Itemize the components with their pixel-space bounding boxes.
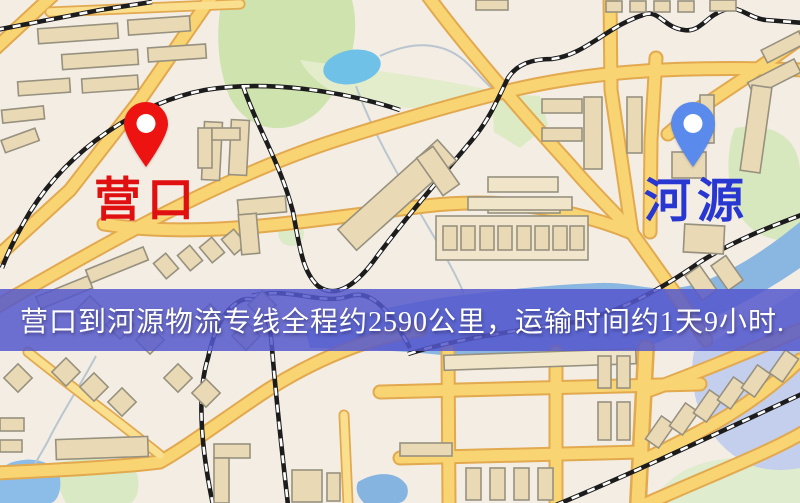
building: [56, 436, 149, 459]
building: [0, 440, 22, 452]
building: [214, 458, 229, 503]
building: [584, 97, 602, 169]
building: [617, 356, 630, 388]
origin-city-label: 营口: [94, 176, 200, 223]
building: [461, 226, 475, 250]
origin-marker: [121, 101, 171, 169]
building: [514, 468, 529, 500]
building: [553, 226, 567, 250]
building: [198, 128, 212, 168]
building: [237, 196, 286, 216]
building: [400, 443, 452, 456]
logistics-route-map: 营口 河源 营口到河源物流专线全程约2590公里，运输时间约1天9小时.: [0, 0, 800, 503]
building: [535, 226, 549, 250]
route-info-banner: 营口到河源物流专线全程约2590公里，运输时间约1天9小时.: [0, 289, 800, 351]
building: [683, 224, 724, 254]
building: [542, 99, 582, 113]
building: [148, 44, 207, 62]
building: [570, 226, 584, 250]
destination-marker: [668, 101, 718, 169]
building: [488, 177, 558, 192]
building: [128, 16, 191, 35]
building: [598, 402, 611, 440]
map-canvas: [0, 0, 800, 503]
building: [212, 128, 240, 140]
building: [710, 0, 736, 11]
building: [82, 75, 139, 93]
building: [678, 1, 694, 12]
building: [627, 97, 642, 153]
building: [654, 1, 670, 12]
building: [617, 402, 630, 440]
red-map-pin-icon: [121, 101, 171, 169]
building: [214, 444, 250, 458]
building: [630, 1, 646, 12]
building: [443, 226, 457, 250]
road-wide: [638, 348, 646, 503]
destination-city-label: 河源: [644, 177, 750, 224]
building: [466, 468, 481, 500]
building: [0, 418, 24, 431]
building: [468, 197, 572, 210]
building: [238, 213, 259, 254]
building: [517, 226, 531, 250]
building: [598, 356, 611, 388]
building: [476, 0, 508, 10]
building: [498, 226, 512, 250]
building: [606, 1, 622, 12]
route-info-text: 营口到河源物流专线全程约2590公里，运输时间约1天9小时.: [0, 300, 785, 340]
building: [480, 226, 494, 250]
blue-map-pin-icon: [668, 101, 718, 169]
building: [542, 128, 582, 141]
building: [292, 470, 322, 502]
building: [490, 468, 505, 500]
building: [18, 78, 71, 96]
building: [327, 473, 340, 501]
building: [538, 468, 553, 500]
